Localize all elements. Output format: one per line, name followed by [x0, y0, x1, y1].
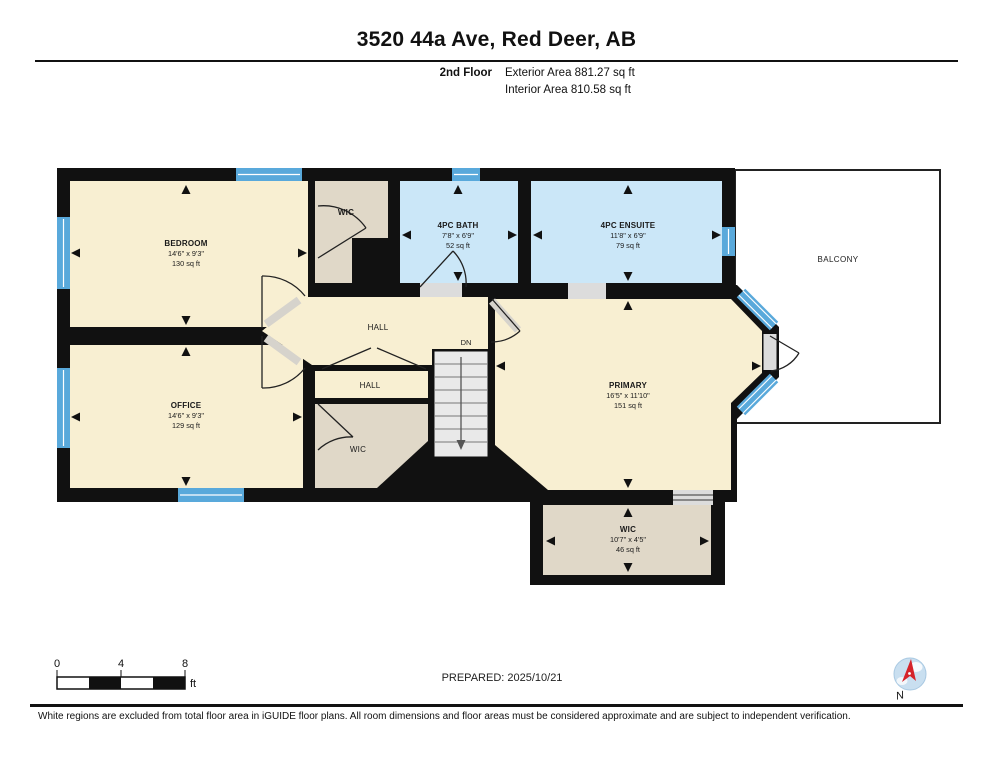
primary-dims: 16'5" x 11'10": [606, 391, 650, 400]
dn-label: DN: [461, 338, 472, 347]
office-area: 129 sq ft: [172, 421, 200, 430]
hall-upper-label: HALL: [368, 323, 389, 332]
ensuite-dims: 11'8" x 6'9": [610, 231, 646, 240]
wic-bottom-dims: 10'7" x 4'5": [610, 535, 646, 544]
wic-top-label: WIC: [338, 208, 354, 217]
wic-mid-label: WIC: [350, 445, 366, 454]
floorplan-drawing: BEDROOM 14'6" x 9'3" 130 sq ft WIC 4PC B…: [0, 0, 993, 768]
footer-divider: [30, 704, 963, 707]
ensuite-door-opening: [568, 283, 606, 299]
bath-door-opening: [420, 283, 462, 297]
scale-tick-8: 8: [175, 658, 195, 670]
ensuite-area: 79 sq ft: [616, 241, 640, 250]
stairs: [434, 351, 488, 457]
primary-area: 151 sq ft: [614, 401, 642, 410]
scale-tick-0: 0: [47, 658, 67, 670]
ensuite-label: 4PC ENSUITE: [601, 221, 656, 230]
balcony-label: BALCONY: [817, 255, 858, 264]
bedroom-area: 130 sq ft: [172, 259, 200, 268]
bedroom-label: BEDROOM: [164, 239, 207, 248]
disclaimer-text: White regions are excluded from total fl…: [38, 711, 968, 722]
prepared-date: PREPARED: 2025/10/21: [372, 672, 632, 684]
sliding-door-opening: [673, 490, 713, 505]
scale-unit-label: ft: [190, 678, 196, 690]
hall-lower-label: HALL: [360, 381, 381, 390]
bath-area: 52 sq ft: [446, 241, 470, 250]
bedroom-dims: 14'6" x 9'3": [168, 249, 204, 258]
primary-label: PRIMARY: [609, 381, 647, 390]
wic-bottom-area: 46 sq ft: [616, 545, 640, 554]
wic-bottom-label: WIC: [620, 525, 636, 534]
office-label: OFFICE: [171, 401, 202, 410]
scale-bar: [57, 670, 185, 689]
floorplan-page: 3520 44a Ave, Red Deer, AB 2nd Floor Ext…: [0, 0, 993, 768]
scale-tick-4: 4: [111, 658, 131, 670]
bath-label: 4PC BATH: [437, 221, 478, 230]
bath-dims: 7'8" x 6'9": [442, 231, 474, 240]
office-dims: 14'6" x 9'3": [168, 411, 204, 420]
compass-icon: [894, 658, 926, 690]
